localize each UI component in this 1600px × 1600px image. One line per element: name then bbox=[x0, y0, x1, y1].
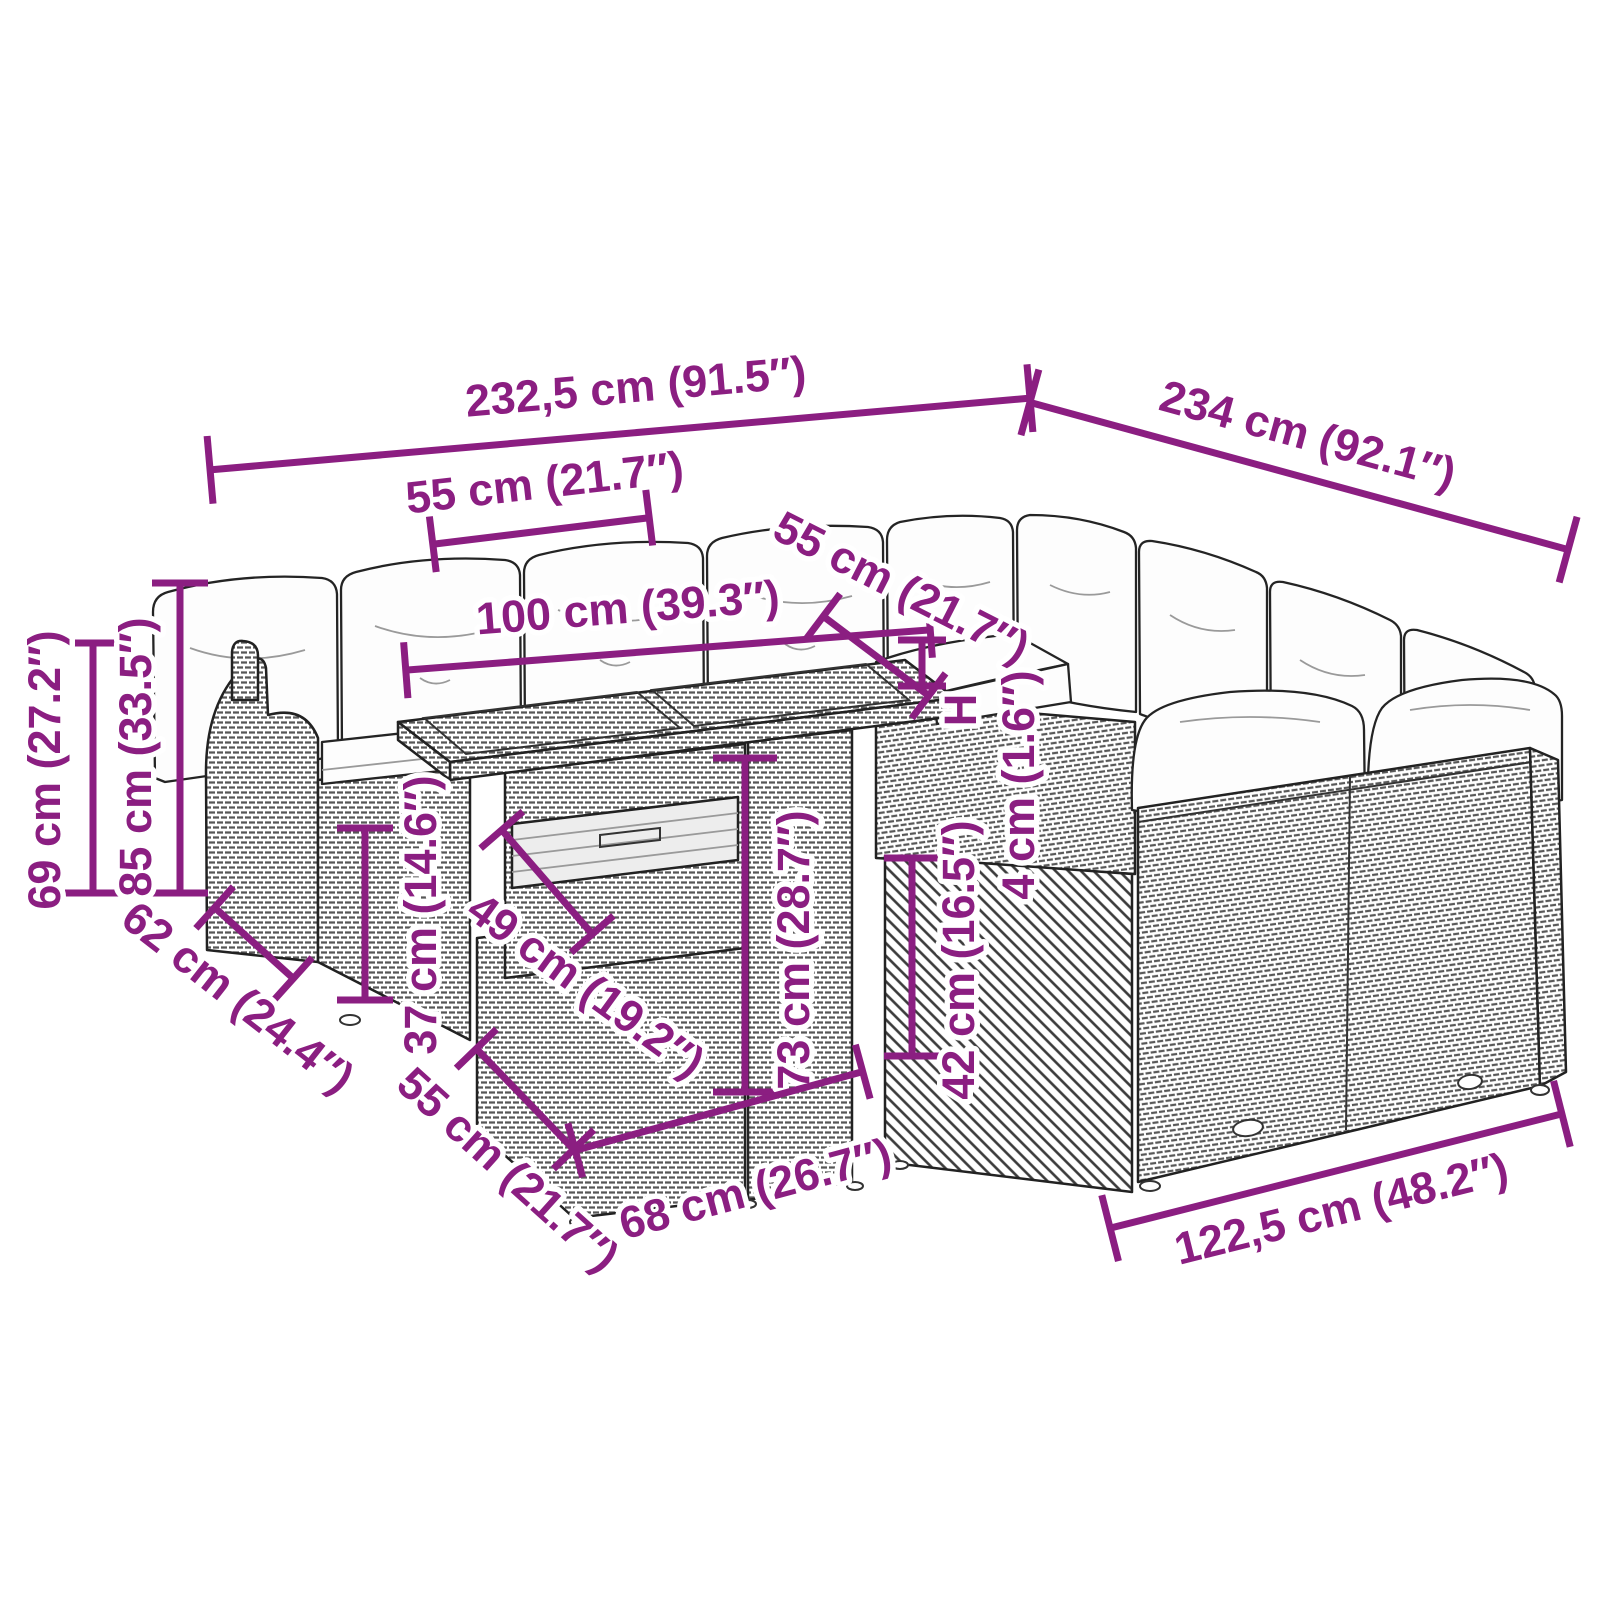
sofa-foot bbox=[1531, 1085, 1549, 1095]
dim-line bbox=[433, 518, 649, 545]
dimension-diagram-page: 232,5 cm (91.5″) 234 cm (92.1″) 55 cm (2… bbox=[0, 0, 1600, 1600]
dim-backrest-module-width-label: 55 cm (21.7″) bbox=[403, 441, 686, 523]
sofa-foot bbox=[340, 1015, 360, 1025]
dim-cushion-symbol-label: H bbox=[935, 694, 986, 727]
corner-stool bbox=[885, 856, 1132, 1192]
dim-armrest-height-label: 69 cm (27.2″) bbox=[19, 630, 70, 909]
dim-cushion-thickness-label: 4 cm (1.6″) bbox=[993, 670, 1044, 899]
dim-tick bbox=[207, 436, 213, 504]
dim-table-height-label: 73 cm (28.7″) bbox=[768, 810, 819, 1089]
dim-seat-height-label: 42 cm (16.5″) bbox=[933, 820, 984, 1099]
stool-body bbox=[885, 856, 1132, 1192]
stool-foot bbox=[892, 1161, 908, 1169]
armrest-back-post bbox=[232, 641, 258, 700]
dim-base-height-label: 37 cm (14.6″) bbox=[395, 775, 446, 1054]
dim-tick bbox=[404, 642, 408, 698]
dimension-diagram: 232,5 cm (91.5″) 234 cm (92.1″) 55 cm (2… bbox=[0, 0, 1600, 1600]
dim-overall-width-label: 232,5 cm (91.5″) bbox=[463, 346, 808, 427]
dim-total-height-label: 85 cm (33.5″) bbox=[110, 617, 161, 896]
sofa-foot bbox=[1140, 1181, 1160, 1191]
dim-tick bbox=[646, 490, 653, 546]
